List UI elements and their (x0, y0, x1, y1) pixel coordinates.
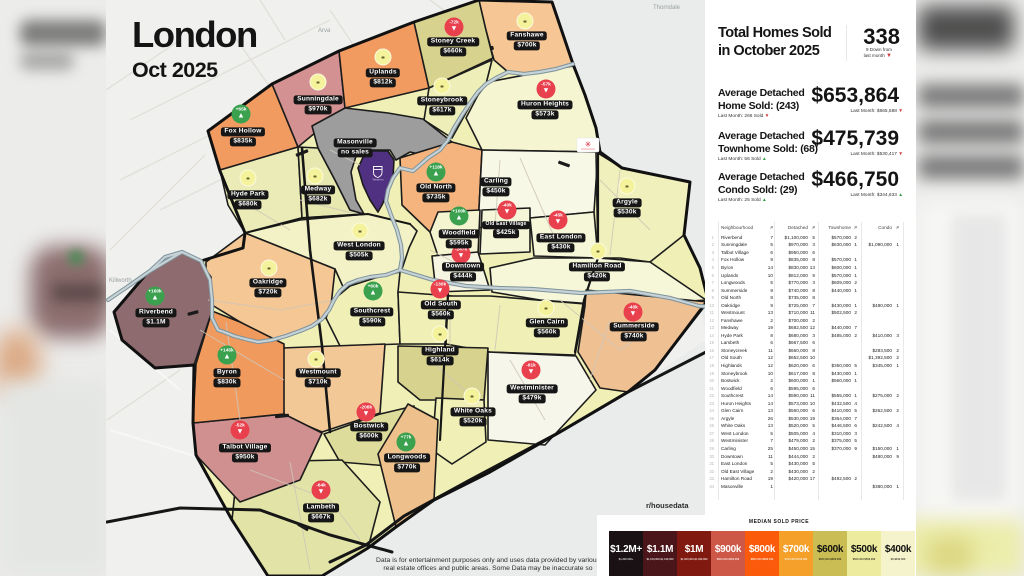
svg-text:✳: ✳ (585, 140, 592, 149)
svg-text:Western: Western (372, 178, 383, 182)
